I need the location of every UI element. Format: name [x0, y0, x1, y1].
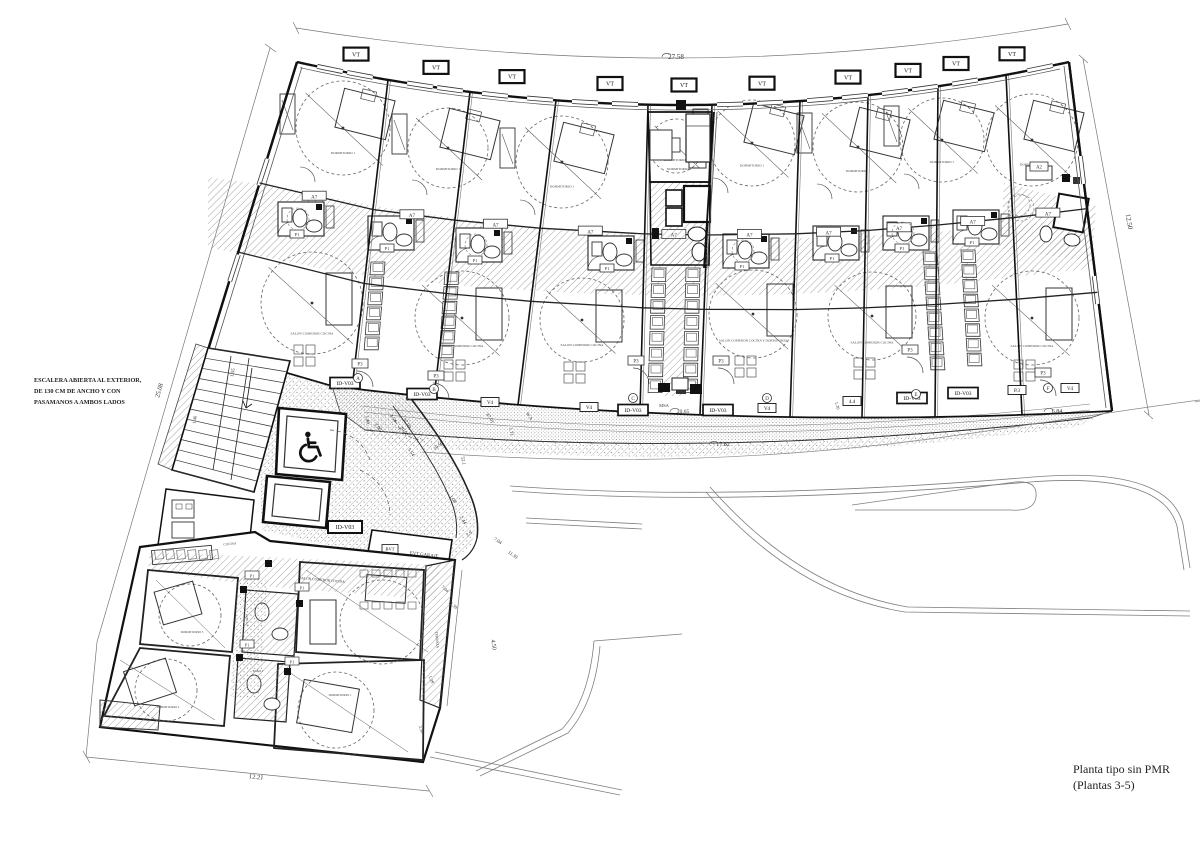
svg-text:E: E	[914, 393, 917, 398]
svg-text:P1: P1	[970, 240, 975, 245]
svg-text:VT: VT	[680, 83, 688, 89]
svg-text:V4: V4	[1067, 387, 1074, 392]
svg-text:(Plantas 3-5): (Plantas 3-5)	[1073, 778, 1135, 792]
svg-text:ESCALERA ABIERTA AL EXTERIOR,: ESCALERA ABIERTA AL EXTERIOR,	[34, 377, 142, 384]
svg-text:A7: A7	[896, 227, 903, 232]
svg-text:A7: A7	[826, 231, 833, 236]
svg-text:P1: P1	[250, 574, 254, 579]
svg-text:VT: VT	[1008, 52, 1016, 58]
svg-text:VT: VT	[606, 82, 614, 88]
svg-text:A2: A2	[1036, 166, 1043, 171]
svg-text:V4: V4	[487, 401, 494, 406]
svg-text:SALON COMEDOR COCINA Y DORMITO: SALON COMEDOR COCINA Y DORMITORIO	[719, 338, 788, 342]
svg-text:ID-V03: ID-V03	[336, 525, 355, 531]
svg-text:P1: P1	[290, 660, 294, 665]
svg-text:P1: P1	[295, 232, 300, 237]
svg-text:DORMITORIO 1: DORMITORIO 1	[331, 151, 355, 155]
svg-text:P1: P1	[473, 258, 478, 263]
svg-text:PASAMANOS A AMBOS LADOS: PASAMANOS A AMBOS LADOS	[34, 399, 125, 406]
svg-text:DORMITORIO 1: DORMITORIO 1	[436, 167, 460, 171]
svg-text:DORMITORIO 3: DORMITORIO 3	[667, 167, 691, 171]
svg-text:A7: A7	[587, 230, 594, 235]
svg-text:VT: VT	[758, 81, 766, 87]
svg-text:A7: A7	[1045, 212, 1052, 217]
svg-text:DE 130 CM DE ANCHO Y CON: DE 130 CM DE ANCHO Y CON	[34, 388, 121, 395]
svg-text:DORMITORIO 1: DORMITORIO 1	[329, 693, 352, 697]
svg-text:SALON COMEDOR COCINA: SALON COMEDOR COCINA	[851, 340, 895, 344]
svg-text:DORMITORIO 3: DORMITORIO 3	[181, 630, 204, 634]
svg-text:P1: P1	[830, 256, 835, 261]
svg-text:P3: P3	[907, 349, 913, 354]
svg-text:A7: A7	[492, 223, 499, 228]
svg-text:P1: P1	[740, 264, 745, 269]
svg-text:VT: VT	[352, 52, 360, 58]
svg-text:DORMITORIO 1: DORMITORIO 1	[930, 160, 954, 164]
svg-text:ID-V03: ID-V03	[954, 391, 971, 397]
svg-text:DORMITORIO 1: DORMITORIO 1	[740, 164, 764, 168]
svg-text:P1: P1	[605, 266, 610, 271]
svg-text:MSA: MSA	[659, 403, 670, 408]
svg-text:VT: VT	[508, 75, 516, 81]
svg-text:DORMITORIO 1: DORMITORIO 1	[550, 184, 574, 188]
svg-text:V4: V4	[586, 406, 593, 411]
svg-text:A7: A7	[970, 221, 977, 226]
svg-text:P3: P3	[633, 360, 639, 365]
svg-text:SALON COMEDOR COCINA: SALON COMEDOR COCINA	[291, 332, 335, 336]
svg-text:P1: P1	[300, 586, 304, 591]
svg-text:SALON COMEDOR COCINA: SALON COMEDOR COCINA	[561, 343, 605, 347]
svg-text:BVT: BVT	[386, 547, 395, 552]
svg-text:Planta tipo sin PMR: Planta tipo sin PMR	[1073, 762, 1170, 776]
svg-text:ID-V03: ID-V03	[709, 408, 726, 414]
svg-text:VT: VT	[844, 75, 852, 81]
svg-text:A7: A7	[311, 195, 318, 200]
svg-text:ID-V03: ID-V03	[624, 408, 641, 414]
svg-text:17.82: 17.82	[716, 442, 730, 448]
svg-text:ID-V03: ID-V03	[413, 392, 430, 398]
svg-text:P1: P1	[900, 246, 905, 251]
svg-text:P1: P1	[385, 246, 390, 251]
svg-text:D: D	[765, 397, 769, 402]
svg-text:V4: V4	[764, 407, 771, 412]
svg-text:ID-V03: ID-V03	[336, 381, 353, 387]
svg-text:VT: VT	[904, 69, 912, 75]
svg-text:4.4: 4.4	[849, 400, 856, 405]
svg-text:A: A	[356, 377, 360, 382]
svg-text:A7: A7	[746, 234, 753, 239]
svg-text:P3: P3	[433, 375, 439, 380]
svg-text:P1: P1	[245, 643, 249, 648]
svg-text:P.3: P.3	[1014, 389, 1020, 394]
svg-text:F: F	[1047, 387, 1050, 392]
svg-text:SALON COMEDOR COCINA: SALON COMEDOR COCINA	[1011, 344, 1055, 348]
svg-text:VT: VT	[952, 62, 960, 68]
svg-text:P3: P3	[1040, 372, 1046, 377]
svg-text:P3: P3	[718, 360, 724, 365]
svg-text:VT: VT	[432, 66, 440, 72]
svg-text:A7: A7	[409, 214, 416, 219]
svg-text:P3: P3	[357, 363, 363, 368]
